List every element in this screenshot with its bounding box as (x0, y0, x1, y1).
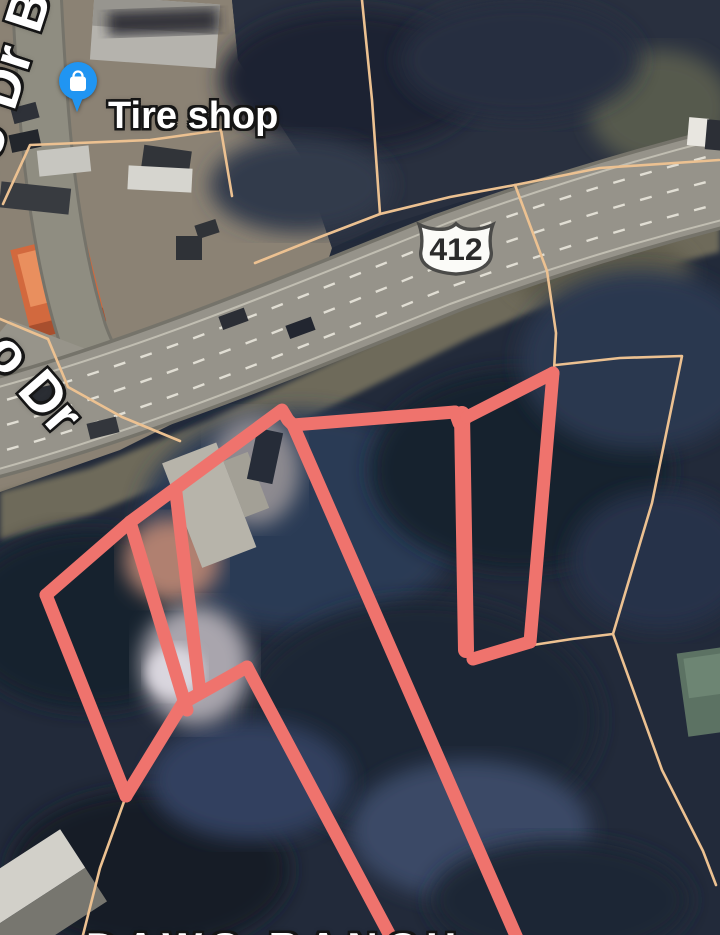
blurred-label (108, 8, 219, 36)
map-canvas[interactable]: Tire shop oo Dr B o Dr Hard Mus DAWS RAN… (0, 0, 720, 935)
satellite-imagery (0, 0, 720, 935)
route-shield-412: 412 (414, 218, 498, 278)
route-number: 412 (429, 231, 482, 267)
street-label-bottom-clipped: DAWS RANCH (86, 924, 465, 935)
poi-label-tire-shop[interactable]: Tire shop (108, 95, 278, 138)
poi-pin[interactable] (58, 61, 98, 113)
shopping-bag-icon (70, 77, 86, 92)
parcel-highlight-line (462, 414, 466, 650)
